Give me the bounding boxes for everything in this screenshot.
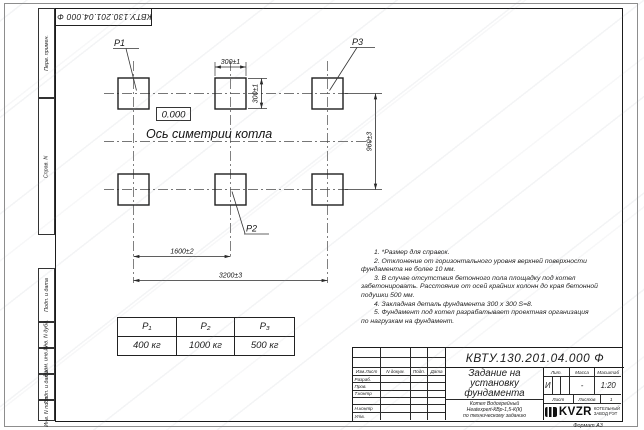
empty-cell: [411, 348, 428, 358]
row-label-nkontr: Н.контр: [353, 405, 381, 412]
empty-cell: [428, 383, 445, 390]
empty-cell: [411, 383, 428, 390]
center-lines: [104, 61, 372, 283]
load-table-value-p1: 400 кг: [118, 337, 177, 356]
empty-cell: [411, 376, 428, 383]
empty-cell: [411, 413, 428, 420]
mass-value: -: [570, 377, 596, 395]
row-label-prov: Пров.: [353, 383, 381, 390]
load-table: P₁ P₂ P₃ 400 кг 1000 кг 500 кг: [117, 317, 295, 356]
row-label-empty: [353, 398, 381, 405]
note-line: 4. Закладная деталь фундамента 300 x 300…: [361, 301, 621, 310]
scale-header: Масштаб: [595, 368, 621, 377]
col-header-data: Дата: [428, 368, 445, 376]
notes-block: 1. *Размер для справок. 2. Отклонение от…: [361, 249, 621, 326]
empty-cell: [428, 358, 445, 368]
empty-cell: [381, 413, 411, 420]
empty-cell: [381, 405, 411, 412]
dim-half-span: 1600±2: [170, 249, 193, 256]
lit-value: И: [544, 377, 553, 395]
empty-cell: [428, 405, 445, 412]
empty-cell: [411, 391, 428, 398]
load-table-header-p3: P₃: [235, 318, 294, 337]
note-line: забетонировать. Расстояние от осей крайн…: [361, 283, 621, 292]
empty-cell: [428, 413, 445, 420]
empty-cell: [353, 358, 381, 368]
note-line: подушки 500 мм.: [361, 292, 621, 301]
sheet-label: Лист: [544, 395, 574, 404]
axis-label: Ось симетрии котла: [146, 127, 272, 141]
empty-cell: [381, 383, 411, 390]
empty-cell: [411, 398, 428, 405]
empty-cell: [353, 348, 381, 358]
empty-cell: [381, 348, 411, 358]
format-label: Формат А3: [552, 423, 624, 429]
empty-cell: [381, 376, 411, 383]
kvzr-logo-icon: [545, 407, 557, 417]
revision-spare-grid: [353, 348, 445, 368]
empty-cell: [381, 398, 411, 405]
empty-cell: [561, 377, 570, 395]
note-line: 2. Отклонение от горизонтального уровня …: [361, 258, 621, 267]
empty-cell: [428, 348, 445, 358]
load-table-header-p2: P₂: [177, 318, 236, 337]
dim-pad-height: 300±1: [253, 84, 260, 104]
extension-lines: [215, 62, 382, 190]
row-label-razrab: Разраб.: [353, 376, 381, 383]
empty-cell: [411, 405, 428, 412]
dim-row-gap: 960±3: [367, 132, 374, 152]
empty-cell: [553, 377, 562, 395]
label-p3: P3: [352, 37, 363, 47]
document-subject: Котел Водогрейный Heatexpert-КВр-1,5-К(К…: [445, 399, 543, 420]
kvzr-logo-text: KVZR: [559, 406, 592, 418]
elevation-mark: 0.000: [162, 110, 186, 121]
load-table-value-p2: 1000 кг: [177, 337, 236, 356]
col-header-izm-list: Изм.Лист: [353, 368, 381, 376]
signature-table: Изм.Лист N докум. Подп. Дата Разраб. Про…: [353, 368, 445, 420]
label-p2: P2: [246, 224, 257, 234]
document-title: Задание на установку фундамента: [445, 368, 543, 399]
note-line: 5. Фундамент под котел разрабатывает про…: [361, 309, 621, 318]
empty-cell: [381, 391, 411, 398]
company-logo-cell: KVZR КОТЕЛЬНЫЙ ЗАВОД РЭТ: [544, 404, 621, 420]
label-p1: P1: [114, 38, 125, 48]
row-label-utv: Утв.: [353, 413, 381, 420]
note-line: фундамента не более 10 мм.: [361, 266, 621, 275]
empty-cell: [381, 358, 411, 368]
dim-pad-width: 300±1: [221, 59, 241, 66]
col-header-podp: Подп.: [411, 368, 428, 376]
note-line: 1. *Размер для справок.: [361, 249, 621, 258]
note-line: по нагрузкам на фундамент.: [361, 318, 621, 327]
row-label-tkontr: Т.контр: [353, 391, 381, 398]
sheets-count: 1: [601, 395, 621, 404]
empty-cell: [428, 391, 445, 398]
scale-value: 1:20: [595, 377, 621, 395]
title-block: КВТУ.130.201.04.000 Ф Изм.Лист N докум. …: [352, 347, 623, 422]
title-block-right: Лит. Масса Масштаб И - 1:20 Лист Листов …: [543, 368, 621, 420]
empty-cell: [411, 358, 428, 368]
mass-header: Масса: [570, 368, 596, 377]
document-designation: КВТУ.130.201.04.000 Ф: [445, 348, 624, 368]
empty-cell: [428, 376, 445, 383]
load-table-header-p1: P₁: [118, 318, 177, 337]
empty-cell: [428, 398, 445, 405]
dim-full-span: 3200±3: [219, 273, 242, 280]
company-name: КОТЕЛЬНЫЙ ЗАВОД РЭТ: [594, 407, 620, 417]
col-header-n-dokum: N докум.: [381, 368, 411, 376]
lit-header: Лит.: [544, 368, 570, 377]
load-table-value-p3: 500 кг: [235, 337, 294, 356]
sheets-label: Листов: [574, 395, 602, 404]
